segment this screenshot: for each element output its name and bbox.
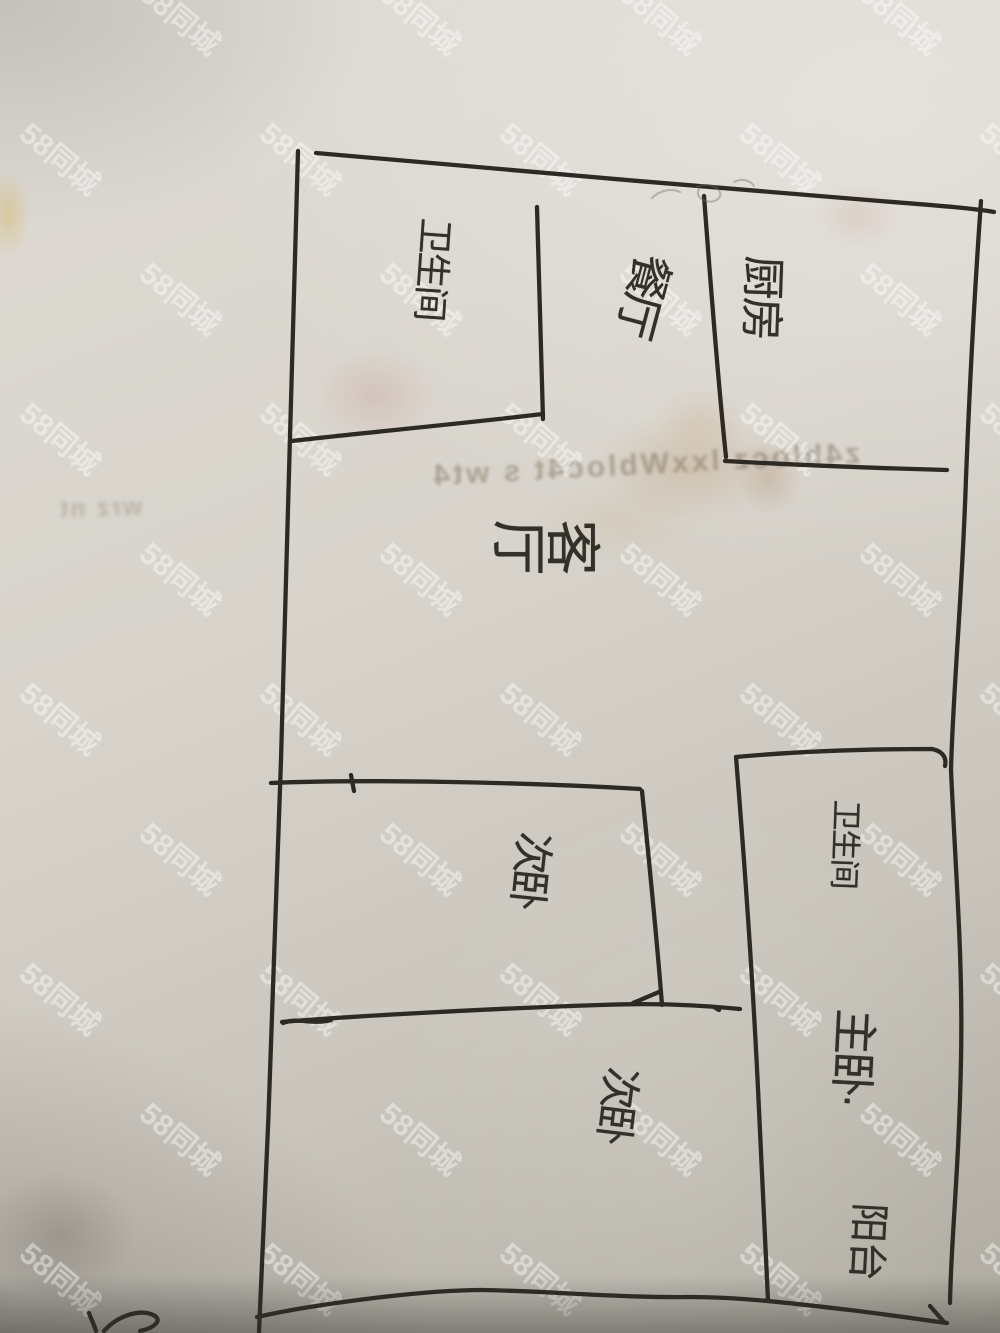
wall-bedrooms-divider [282, 1004, 740, 1022]
wall-kitchen-bottom [725, 461, 947, 470]
wall-right-column-left [736, 757, 768, 1301]
wall-bathroom-top-right [537, 207, 543, 419]
wall-divider-scribble [283, 1020, 331, 1023]
wall-junction-dot [714, 1007, 719, 1010]
wall-bathroom-right-top [736, 749, 945, 766]
floor-plan-sketch [0, 0, 1000, 1333]
wall-bathroom-top-bottom [292, 414, 543, 441]
wall-bedroom-mid-right [642, 791, 662, 1005]
wall-outer-left [259, 151, 298, 1332]
wall-divider-tick [351, 775, 354, 791]
wall-outer-right [950, 201, 981, 1303]
wall-junction-cross [633, 992, 659, 1003]
pen-scribble-corner [89, 1313, 158, 1331]
wall-kitchen-left [704, 196, 726, 457]
wall-hall-divider [271, 781, 640, 789]
wall-outer-bottom [257, 1290, 947, 1323]
wall-outer-top [316, 153, 994, 212]
floor-plan-photo: 58同城58同城58同城58同城58同城58同城58同城58同城58同城58同城… [0, 0, 1000, 1333]
